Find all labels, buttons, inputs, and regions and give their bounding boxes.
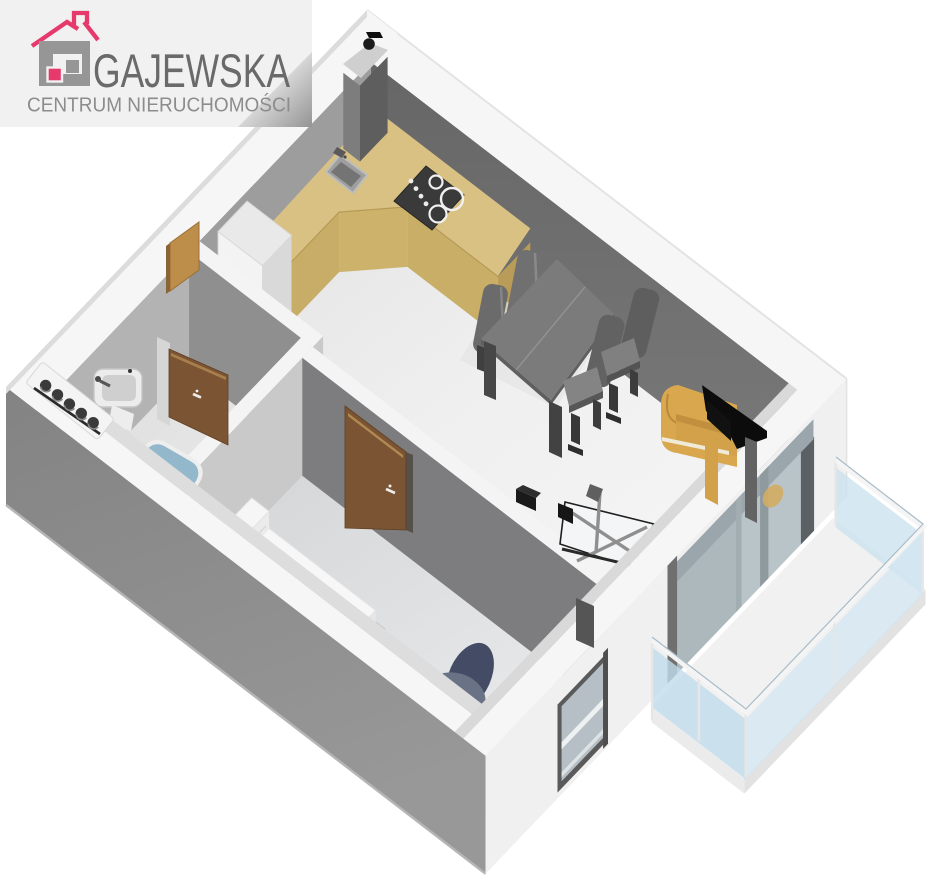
svg-text:CENTRUM NIERUCHOMOŚCI: CENTRUM NIERUCHOMOŚCI <box>27 93 291 117</box>
svg-text:GAJEWSKA: GAJEWSKA <box>93 45 290 98</box>
